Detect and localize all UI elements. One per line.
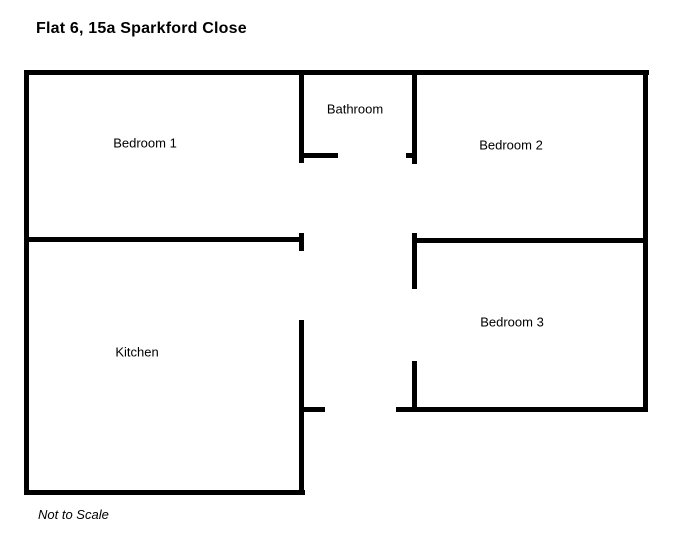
room-label-bedroom3: Bedroom 3 (480, 315, 544, 330)
room-label-bathroom: Bathroom (327, 102, 383, 117)
floorplan-canvas: Flat 6, 15a Sparkford Close Bedroom 1 Ba… (0, 0, 697, 544)
wall-kitchen-bottom (24, 490, 305, 495)
wall-hall-bottom-left-tick (299, 407, 325, 412)
room-label-bedroom1: Bedroom 1 (113, 136, 177, 151)
wall-bathroom-left (299, 70, 304, 163)
wall-bathroom-door-nub (406, 153, 412, 158)
page-title: Flat 6, 15a Sparkford Close (36, 20, 247, 38)
wall-bedroom2-bottom (412, 238, 648, 243)
wall-divider-left-endcap (299, 233, 304, 251)
wall-bedroom3-left-upper (412, 233, 417, 289)
room-label-kitchen: Kitchen (115, 345, 158, 360)
not-to-scale-note: Not to Scale (38, 507, 109, 522)
wall-bathroom-right (412, 70, 417, 164)
wall-bedroom3-left-lower (412, 361, 417, 412)
wall-divider-left (24, 237, 304, 242)
room-label-bedroom2: Bedroom 2 (479, 138, 543, 153)
wall-bedroom3-bottom (396, 407, 648, 412)
wall-outer-top (24, 70, 649, 75)
wall-bathroom-door-left (299, 153, 338, 158)
wall-outer-left (24, 70, 29, 495)
